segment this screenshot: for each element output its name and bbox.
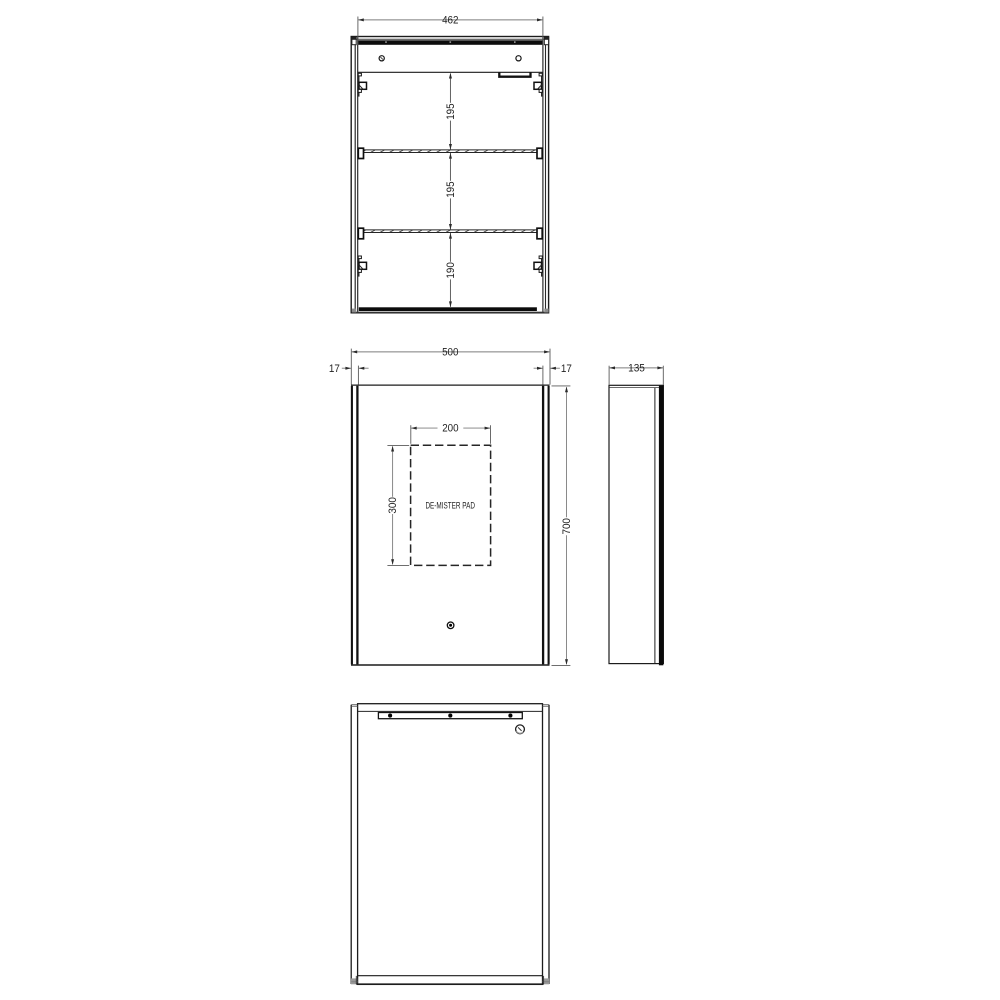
- svg-text:DE-MISTER PAD: DE-MISTER PAD: [425, 500, 475, 510]
- svg-text:190: 190: [445, 262, 457, 278]
- svg-text:195: 195: [445, 181, 457, 197]
- svg-text:462: 462: [442, 14, 458, 26]
- svg-text:17: 17: [561, 363, 572, 375]
- svg-text:500: 500: [442, 346, 458, 358]
- svg-text:17: 17: [329, 363, 340, 375]
- svg-text:195: 195: [445, 103, 457, 119]
- svg-text:700: 700: [561, 518, 573, 534]
- svg-text:135: 135: [628, 363, 645, 375]
- svg-text:200: 200: [442, 423, 458, 435]
- svg-text:300: 300: [387, 497, 399, 513]
